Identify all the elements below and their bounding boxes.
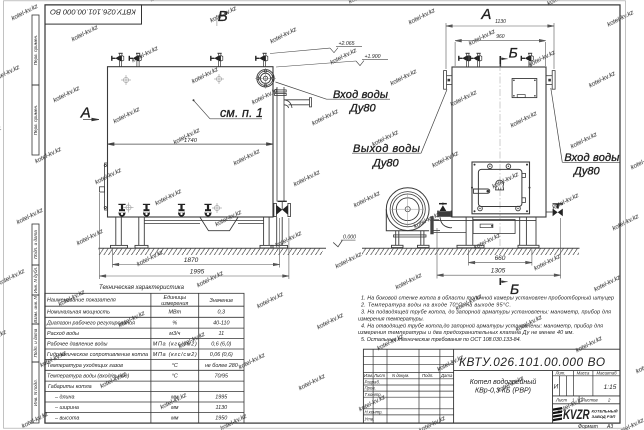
svg-text:Масса: Масса (577, 371, 590, 376)
svg-text:1995: 1995 (215, 395, 228, 401)
svg-text:– ширина: – ширина (54, 405, 79, 411)
svg-text:Гидравлическое сопротивление к: Гидравлическое сопротивление котла (47, 352, 148, 358)
svg-text:1740: 1740 (184, 138, 198, 144)
svg-text:1130: 1130 (216, 405, 228, 411)
svg-text:Вход воды: Вход воды (333, 89, 388, 101)
svg-text:Перв. примен.: Перв. примен. (33, 105, 38, 136)
svg-text:Подп. и дата: Подп. и дата (33, 328, 38, 357)
svg-text:1. На боковой стенке котла в: 1. На боковой стенке котла в области топ… (361, 295, 614, 302)
svg-text:– высота: – высота (54, 416, 79, 422)
svg-text:660: 660 (495, 255, 506, 262)
svg-text:Ду80: Ду80 (572, 166, 600, 178)
svg-text:мм: мм (171, 405, 179, 411)
svg-text:0,06 (0,6): 0,06 (0,6) (210, 352, 233, 358)
svg-text:Разраб.: Разраб. (365, 380, 381, 385)
svg-text:мм: мм (171, 416, 179, 422)
svg-text:0,6 (6,0): 0,6 (6,0) (211, 342, 231, 348)
svg-text:0.000: 0.000 (343, 235, 356, 241)
svg-text:Изм.: Изм. (364, 373, 373, 378)
svg-text:Инв. N подл.: Инв. N подл. (33, 379, 38, 406)
svg-text:Формат: Формат (578, 424, 598, 430)
svg-text:1995: 1995 (190, 269, 205, 276)
svg-text:3. На подводящей трубе котла,: 3. На подводящей трубе котла, до запорно… (361, 309, 611, 316)
svg-text:4. На отводящей трубе котла,д: 4. На отводящей трубе котла,до запорной … (361, 322, 603, 329)
svg-text:N докум.: N докум. (392, 373, 409, 378)
svg-text:Температура уходящих газов: Температура уходящих газов (47, 363, 123, 369)
svg-text:Габариты котла: Габариты котла (48, 384, 92, 390)
svg-text:+2.065: +2.065 (339, 41, 355, 47)
svg-text:%: % (172, 321, 177, 327)
svg-text:Лист: Лист (373, 373, 385, 378)
svg-text:Утв.: Утв. (365, 417, 375, 422)
svg-text:МПа (кгс/см2): МПа (кгс/см2) (153, 352, 197, 358)
svg-text:1950: 1950 (215, 416, 227, 422)
svg-text:960: 960 (496, 34, 505, 40)
svg-text:Номинальная мощность: Номинальная мощность (47, 310, 110, 316)
svg-text:1870: 1870 (184, 257, 199, 264)
svg-text:Н.контр.: Н.контр. (365, 410, 383, 415)
svg-text:70/95: 70/95 (215, 374, 229, 380)
svg-text:Подп. и дата: Подп. и дата (33, 230, 38, 259)
svg-text:1:15: 1:15 (604, 384, 617, 391)
svg-text:°С: °С (172, 374, 178, 380)
svg-text:ЗАВОД РЭП: ЗАВОД РЭП (592, 414, 616, 419)
svg-text:Выход воды: Выход воды (353, 143, 420, 155)
svg-text:Дата: Дата (440, 373, 453, 378)
svg-text:Взам. инв. N: Взам. инв. N (33, 295, 38, 322)
svg-text:Значение: Значение (209, 298, 233, 304)
svg-text:И: И (554, 384, 559, 391)
svg-text:Б: Б (509, 45, 518, 61)
svg-text:Пров.: Пров. (365, 386, 376, 391)
svg-text:0,3: 0,3 (218, 310, 226, 316)
svg-text:Котел водогрейный: Котел водогрейный (470, 378, 537, 386)
svg-text:Диапазон рабочего регулировани: Диапазон рабочего регулирования (46, 321, 135, 327)
svg-text:Рабочее давление воды: Рабочее давление воды (47, 342, 107, 348)
svg-text:5. Остальные технические треб: 5. Остальные технические требования по О… (361, 337, 521, 343)
svg-text:Расход воды: Расход воды (47, 331, 79, 337)
svg-text:КВТУ.026.101.00.000 ВО: КВТУ.026.101.00.000 ВО (50, 8, 136, 17)
svg-text:Вход воды: Вход воды (564, 152, 619, 164)
svg-text:2. Температура воды на входе: 2. Температура воды на входе 70°С, на вы… (360, 303, 511, 309)
svg-text:°С: °С (172, 363, 178, 369)
svg-text:Масштаб: Масштаб (596, 371, 617, 376)
svg-text:В: В (218, 8, 228, 25)
svg-text:не более 280: не более 280 (205, 363, 238, 369)
svg-text:Техническая характеристика: Техническая характеристика (99, 285, 185, 291)
svg-text:Ду80: Ду80 (348, 103, 376, 115)
svg-text:Подп.: Подп. (422, 373, 433, 378)
svg-text:Т.контр.: Т.контр. (365, 392, 382, 397)
svg-text:Температура воды (вход/выход): Температура воды (вход/выход) (47, 374, 130, 380)
svg-text:1130: 1130 (495, 19, 506, 25)
svg-text:+1.900: +1.900 (365, 54, 381, 60)
svg-text:А: А (80, 104, 91, 121)
svg-text:измерения: измерения (161, 301, 188, 307)
svg-text:Ду80: Ду80 (371, 158, 399, 170)
svg-text:Листов: Листов (581, 397, 598, 402)
svg-text:KVZR: KVZR (563, 407, 590, 422)
svg-text:см. п. 1: см. п. 1 (220, 106, 263, 120)
svg-text:А3: А3 (606, 424, 613, 430)
svg-text:измерения температуры.: измерения температуры. (358, 316, 424, 322)
svg-text:А: А (480, 6, 491, 23)
svg-text:11: 11 (218, 331, 224, 337)
svg-text:Наименование показателя: Наименование показателя (47, 298, 116, 304)
svg-text:Инв. N дубл.: Инв. N дубл. (33, 267, 38, 294)
svg-text:мм: мм (171, 395, 179, 401)
svg-text:КВр-0,3 КБ (РВР): КВр-0,3 КБ (РВР) (475, 388, 531, 395)
svg-text:40-110: 40-110 (213, 321, 229, 327)
svg-text:КОТЕЛЬНЫЙ: КОТЕЛЬНЫЙ (592, 409, 618, 414)
svg-text:КВТУ.026.101.00.000 ВО: КВТУ.026.101.00.000 ВО (459, 355, 605, 369)
svg-text:МВт: МВт (169, 310, 182, 316)
svg-text:– длина: – длина (54, 395, 74, 401)
svg-text:МПа (кгс/см2): МПа (кгс/см2) (153, 342, 197, 348)
svg-text:1305: 1305 (491, 268, 506, 275)
svg-text:измерения температуры и два пр: измерения температуры и два предохраните… (358, 330, 574, 336)
svg-text:м3/ч: м3/ч (169, 331, 180, 337)
svg-text:Лит.: Лит. (554, 371, 565, 376)
svg-text:Лист: Лист (555, 397, 567, 402)
svg-text:Перв. примен.: Перв. примен. (33, 35, 38, 66)
